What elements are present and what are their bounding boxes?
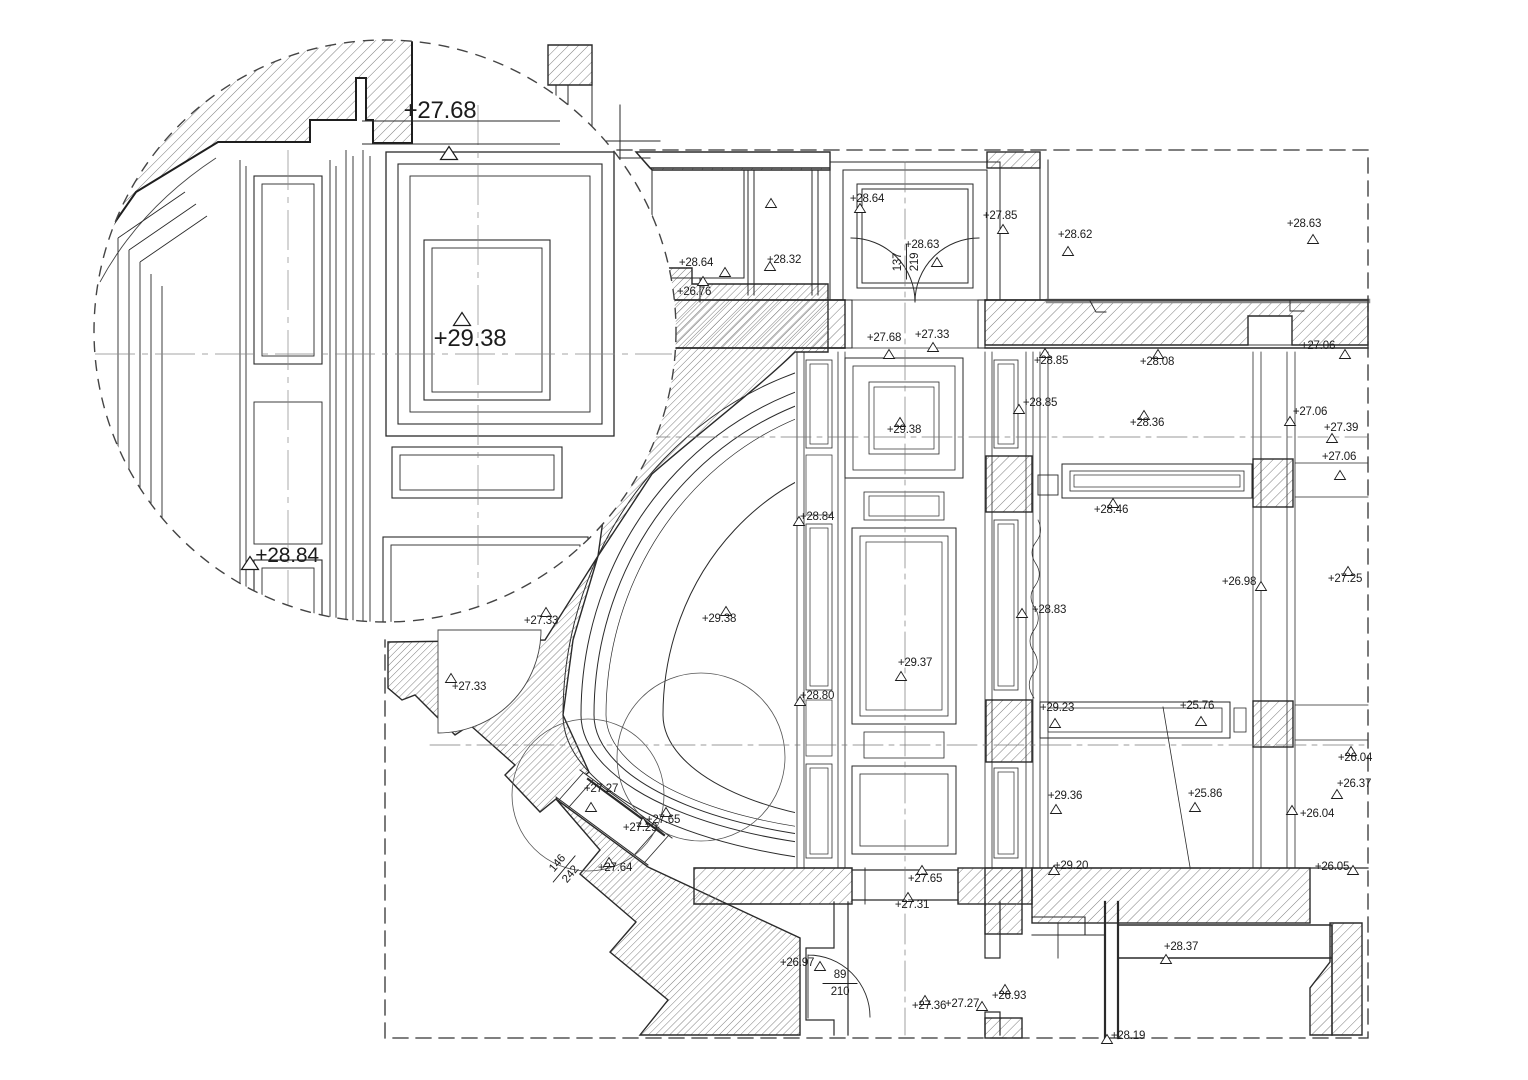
- elevation-label: +29.38: [702, 613, 736, 625]
- door-height-label: 219: [909, 253, 921, 272]
- level-triangle-icon: [1051, 805, 1062, 814]
- elevation-marker: +25.76: [1180, 700, 1214, 726]
- elevation-label: +26.98: [1222, 576, 1256, 588]
- elevation-marker: +27.85: [983, 210, 1017, 234]
- elevation-marker: +26.04: [1338, 747, 1373, 765]
- elevation-marker: +28.46: [1094, 499, 1128, 517]
- elevation-label: +28.19: [1111, 1030, 1145, 1042]
- elevation-label: +28.63: [905, 239, 939, 251]
- elevation-marker: +26.37: [1332, 778, 1372, 799]
- elevation-label: +27.06: [1293, 406, 1327, 418]
- door-height-label: 210: [831, 986, 850, 998]
- elevation-label: +28.64: [679, 257, 714, 269]
- level-triangle-icon: [998, 225, 1009, 234]
- elevation-label: +29.38: [434, 325, 507, 352]
- elevation-label: +29.37: [898, 657, 932, 669]
- drawing-sheet: +28.64+26.76+28.32+28.64+28.63+27.85+28.…: [0, 0, 1528, 1080]
- elevation-label: +26.93: [992, 990, 1026, 1002]
- elevation-label: +28.32: [767, 254, 801, 266]
- elevation-marker: +28.32: [765, 254, 802, 271]
- elevation-label: +28.08: [1140, 356, 1174, 368]
- elevation-label: +27.29: [623, 822, 657, 834]
- elevation-marker: +27.27: [945, 998, 988, 1011]
- elevation-label: +27.06: [1301, 340, 1335, 352]
- level-triangle-icon: [1332, 790, 1343, 799]
- level-triangle-icon: [1340, 350, 1351, 359]
- elevation-marker: +26.93: [992, 985, 1026, 1003]
- level-triangle-icon: [766, 199, 777, 208]
- elevation-marker: +28.37: [1161, 941, 1199, 964]
- elevation-label: +27.27: [945, 998, 979, 1010]
- elevation-label: +28.62: [1058, 229, 1092, 241]
- elevation-label: +25.76: [1180, 700, 1214, 712]
- elevation-label: +28.46: [1094, 504, 1128, 516]
- floorplan-canvas: +28.64+26.76+28.32+28.64+28.63+27.85+28.…: [0, 0, 1528, 1080]
- elevation-label: +29.20: [1054, 860, 1088, 872]
- elevation-marker: +28.64: [850, 193, 885, 213]
- elevation-label: +27.06: [1322, 451, 1356, 463]
- elevation-label: +28.63: [1287, 218, 1321, 230]
- elevation-label: +28.36: [1130, 417, 1164, 429]
- elevation-marker: +26.97: [780, 957, 826, 971]
- elevation-label: +29.38: [887, 424, 921, 436]
- elevation-label: +26.37: [1337, 778, 1371, 790]
- elevation-marker: +27.36: [912, 996, 946, 1013]
- elevation-label: +29.36: [1048, 790, 1082, 802]
- elevation-label: +26.76: [677, 286, 711, 298]
- elevation-label: +27.25: [1328, 573, 1362, 585]
- elevation-marker: +25.86: [1188, 788, 1222, 812]
- elevation-marker: +27.25: [1328, 567, 1362, 586]
- elevation-label: +26.04: [1338, 752, 1373, 764]
- door-dimension: 146242: [542, 847, 586, 892]
- elevation-label: +28.80: [800, 690, 834, 702]
- level-triangle-icon: [932, 258, 943, 267]
- elevation-marker: +26.98: [1222, 576, 1267, 591]
- elevation-label: +27.39: [1324, 422, 1358, 434]
- elevation-label: +27.27: [584, 783, 618, 795]
- level-triangle-icon: [1256, 582, 1267, 591]
- elevation-label: +25.86: [1188, 788, 1222, 800]
- elevation-label: +27.33: [915, 329, 949, 341]
- elevation-label: +28.64: [850, 193, 885, 205]
- elevation-label: +27.85: [983, 210, 1017, 222]
- level-triangle-icon: [1196, 717, 1207, 726]
- detail-circle-view: +27.68+29.38+28.84: [60, 0, 676, 650]
- elevation-marker: +27.65: [908, 866, 942, 886]
- elevation-label: +28.84: [255, 544, 319, 567]
- elevation-label: +28.85: [1034, 355, 1068, 367]
- elevation-marker: +26.05: [1315, 861, 1359, 875]
- elevation-marker: +27.33: [524, 608, 558, 628]
- elevation-label: +28.84: [800, 511, 835, 523]
- level-triangle-icon: [1190, 803, 1201, 812]
- elevation-label: +27.33: [452, 681, 486, 693]
- level-triangle-icon: [1050, 719, 1061, 728]
- level-triangle-icon: [1063, 247, 1074, 256]
- elevation-marker: +29.36: [1048, 790, 1082, 814]
- elevation-marker: [766, 199, 777, 208]
- elevation-marker: +27.31: [895, 893, 929, 912]
- level-triangle-icon: [815, 962, 826, 971]
- elevation-marker: +29.38: [702, 607, 736, 626]
- level-triangle-icon: [1287, 806, 1298, 815]
- level-triangle-icon: [720, 268, 731, 277]
- elevation-marker: +28.19: [1102, 1030, 1146, 1044]
- elevation-marker: +28.62: [1058, 229, 1092, 256]
- elevation-marker: +27.39: [1324, 422, 1358, 443]
- elevation-label: +26.05: [1315, 861, 1349, 873]
- elevation-label: +28.83: [1032, 604, 1066, 616]
- level-triangle-icon: [1161, 955, 1172, 964]
- elevation-label: +26.04: [1300, 808, 1335, 820]
- elevation-marker: +29.23: [1040, 702, 1074, 728]
- elevation-label: +27.33: [524, 615, 558, 627]
- elevation-label: +28.37: [1164, 941, 1198, 953]
- elevation-marker: +28.85: [1034, 349, 1068, 368]
- elevation-label: +27.36: [912, 1000, 946, 1012]
- elevation-marker: +26.04: [1287, 806, 1335, 821]
- elevation-marker: +28.36: [1130, 411, 1164, 430]
- elevation-marker: +27.06: [1322, 451, 1356, 480]
- elevation-marker: +28.08: [1140, 350, 1174, 369]
- elevation-label: +27.68: [867, 332, 901, 344]
- elevation-label: +27.31: [895, 899, 929, 911]
- elevation-label: +27.64: [598, 862, 633, 874]
- level-triangle-icon: [928, 343, 939, 352]
- elevation-label: +28.85: [1023, 397, 1057, 409]
- elevation-marker: +27.06: [1285, 406, 1328, 426]
- elevation-label: +27.65: [908, 873, 942, 885]
- door-width-label: 89: [834, 969, 846, 981]
- elevation-label: +29.23: [1040, 702, 1074, 714]
- level-triangle-icon: [1335, 471, 1346, 480]
- elevation-label: +27.68: [404, 97, 477, 124]
- elevation-label: +26.97: [780, 957, 814, 969]
- door-width-label: 137: [892, 253, 904, 272]
- level-triangle-icon: [1327, 434, 1338, 443]
- level-triangle-icon: [1308, 235, 1319, 244]
- elevation-marker: +28.63: [1287, 218, 1321, 244]
